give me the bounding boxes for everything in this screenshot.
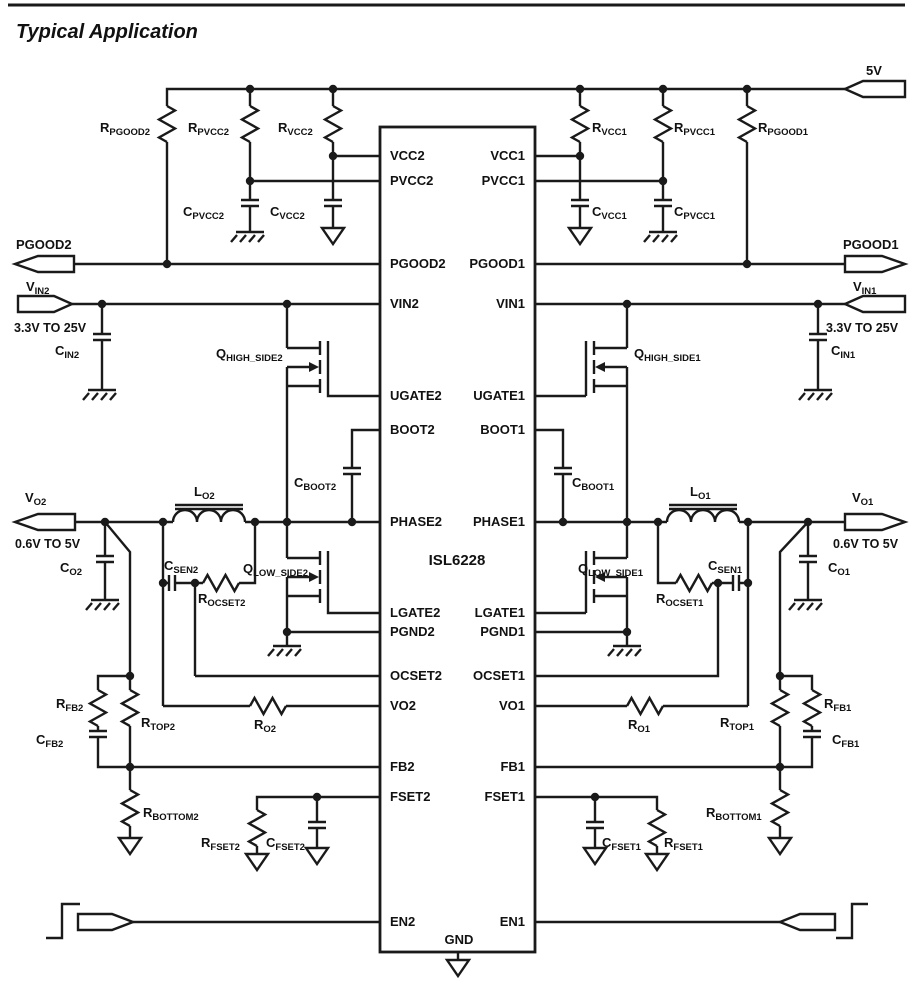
resistor-rpvcc1 (655, 106, 671, 142)
port-5v (845, 81, 905, 97)
label-cboot1: CBOOT1 (572, 475, 615, 493)
capacitor-cpvcc1 (654, 200, 672, 206)
label-cpvcc1: CPVCC1 (674, 204, 716, 222)
pin-vcc1: VCC1 (490, 148, 525, 163)
label-rbottom2: RBOTTOM2 (143, 805, 199, 823)
mosfet-q-high-side2 (287, 341, 320, 393)
resistor-rpgood1 (739, 106, 755, 142)
port-pgood2 (15, 256, 74, 272)
ground-triangle-icon (447, 960, 469, 976)
ground-triangle-icon (119, 838, 141, 854)
capacitor-cfset1 (586, 822, 604, 828)
resistor-rtop1 (772, 690, 788, 726)
port-vin1 (845, 296, 905, 312)
resistor-rbottom1 (772, 790, 788, 826)
pin-fb2: FB2 (390, 759, 415, 774)
port-en1 (780, 914, 835, 930)
label-cfset1: CFSET1 (602, 835, 642, 853)
label-rocset1: ROCSET1 (656, 591, 704, 609)
label-rtop2: RTOP2 (141, 715, 175, 733)
label-co2: CO2 (60, 560, 82, 578)
label-rpvcc1: RPVCC1 (674, 120, 716, 138)
ground-triangle-icon (569, 228, 591, 244)
label-qhighside2: QHIGH_SIDE2 (216, 346, 283, 364)
label-vin2-range: 3.3V TO 25V (14, 321, 87, 335)
label-ro1: RO1 (628, 717, 651, 735)
ic-part-number: ISL6228 (429, 552, 486, 569)
port-en2 (78, 914, 133, 930)
label-rvcc2: RVCC2 (278, 120, 313, 138)
label-cin1: CIN1 (831, 343, 856, 361)
ground-earth-icon (231, 232, 264, 242)
capacitor-cfb2 (89, 731, 107, 737)
label-vo2-range: 0.6V TO 5V (15, 537, 81, 551)
pin-vin1: VIN1 (496, 296, 525, 311)
pin-ocset2: OCSET2 (390, 668, 442, 683)
resistor-rvcc1 (572, 106, 588, 142)
ic-body (380, 127, 535, 952)
label-rfset2: RFSET2 (201, 835, 240, 853)
port-vo2 (15, 514, 75, 530)
ground-earth-icon (83, 390, 116, 400)
ground-earth-icon (608, 646, 641, 656)
label-cpvcc2: CPVCC2 (183, 204, 224, 222)
label-rtop1: RTOP1 (720, 715, 755, 733)
ground-triangle-icon (769, 838, 791, 854)
resistor-rocset2 (203, 575, 239, 591)
resistor-rfb2 (90, 690, 106, 726)
ground-triangle-icon (246, 854, 268, 870)
label-rpgood2: RPGOOD2 (100, 120, 150, 138)
enable-step-icon-en2 (46, 904, 80, 938)
label-pgood1: PGOOD1 (843, 237, 899, 252)
ground-earth-icon (799, 390, 832, 400)
pin-fset2: FSET2 (390, 789, 430, 804)
label-rfb2: RFB2 (56, 696, 83, 714)
capacitor-cvcc2 (324, 200, 342, 206)
typical-application-schematic: Typical Application (0, 0, 913, 1000)
label-rfset1: RFSET1 (664, 835, 704, 853)
label-rpgood1: RPGOOD1 (758, 120, 809, 138)
label-vin1-range: 3.3V TO 25V (826, 321, 899, 335)
capacitor-cboot2 (343, 468, 361, 474)
capacitor-cin2 (93, 334, 111, 340)
resistor-rpgood2 (159, 106, 175, 142)
pin-phase1: PHASE1 (473, 514, 525, 529)
resistor-rfset2 (249, 810, 265, 846)
label-rpvcc2: RPVCC2 (188, 120, 229, 138)
ground-earth-icon (644, 232, 677, 242)
resistor-rbottom2 (122, 790, 138, 826)
resistor-ro1 (627, 698, 663, 714)
label-csen2: CSEN2 (164, 558, 198, 576)
capacitor-co1 (799, 556, 817, 562)
port-vo1 (845, 514, 905, 530)
label-cin2: CIN2 (55, 343, 79, 361)
ground-earth-icon (789, 600, 822, 610)
label-csen1: CSEN1 (708, 558, 743, 576)
pin-vo1: VO1 (499, 698, 525, 713)
label-lo1: LO1 (690, 484, 711, 502)
pin-en1: EN1 (500, 914, 525, 929)
pin-ocset1: OCSET1 (473, 668, 525, 683)
resistor-rpvcc2 (242, 106, 258, 142)
resistor-rfb1 (804, 690, 820, 726)
label-vin1: VIN1 (853, 279, 877, 297)
pin-lgate1: LGATE1 (475, 605, 525, 620)
pin-vcc2: VCC2 (390, 148, 425, 163)
ground-earth-icon (86, 600, 119, 610)
ground-triangle-icon (646, 854, 668, 870)
capacitor-cin1 (809, 334, 827, 340)
capacitor-csen2 (169, 575, 175, 591)
pin-pvcc2: PVCC2 (390, 173, 433, 188)
resistor-rvcc2 (325, 106, 341, 142)
label-co1: CO1 (828, 560, 851, 578)
pin-boot1: BOOT1 (480, 422, 525, 437)
capacitor-co2 (96, 556, 114, 562)
pin-phase2: PHASE2 (390, 514, 442, 529)
pin-boot2: BOOT2 (390, 422, 435, 437)
label-cfb2: CFB2 (36, 732, 63, 750)
label-rbottom1: RBOTTOM1 (706, 805, 762, 823)
port-pgood1 (845, 256, 905, 272)
datasheet-page: Typical Application (0, 0, 913, 1000)
pin-en2: EN2 (390, 914, 415, 929)
label-ro2: RO2 (254, 717, 276, 735)
capacitor-cpvcc2 (241, 200, 259, 206)
label-cvcc1: CVCC1 (592, 204, 627, 222)
label-pgood2: PGOOD2 (16, 237, 72, 252)
label-qhighside1: QHIGH_SIDE1 (634, 346, 701, 364)
ground-earth-icon (268, 646, 301, 656)
pin-pgood2: PGOOD2 (390, 256, 446, 271)
resistor-rocset1 (676, 575, 712, 591)
capacitor-cfb1 (803, 731, 821, 737)
pin-fset1: FSET1 (485, 789, 525, 804)
label-vin2: VIN2 (26, 279, 49, 297)
label-rvcc1: RVCC1 (592, 120, 627, 138)
label-cfset2: CFSET2 (266, 835, 305, 853)
pin-pgood1: PGOOD1 (469, 256, 525, 271)
label-vo2: VO2 (25, 490, 46, 508)
label-5v: 5V (866, 63, 882, 78)
label-rocset2: ROCSET2 (198, 591, 245, 609)
ground-triangle-icon (584, 848, 606, 864)
mosfet-q-high-side1 (594, 341, 627, 393)
label-qlowside1: QLOW_SIDE1 (578, 561, 644, 579)
ground-triangle-icon (306, 848, 328, 864)
capacitor-csen1 (733, 575, 739, 591)
pin-vin2: VIN2 (390, 296, 419, 311)
pin-pvcc1: PVCC1 (482, 173, 525, 188)
port-vin2 (18, 296, 72, 312)
page-title: Typical Application (16, 21, 198, 43)
capacitor-cvcc1 (571, 200, 589, 206)
resistor-ro2 (250, 698, 286, 714)
label-cboot2: CBOOT2 (294, 475, 336, 493)
label-rfb1: RFB1 (824, 696, 852, 714)
label-qlowside2: QLOW_SIDE2 (243, 561, 308, 579)
label-vo1-range: 0.6V TO 5V (833, 537, 899, 551)
ground-triangle-icon (322, 228, 344, 244)
inductor-lo1 (667, 505, 739, 522)
enable-step-icon-en1 (836, 904, 868, 938)
pin-ugate1: UGATE1 (473, 388, 525, 403)
pin-gnd: GND (445, 932, 474, 947)
resistor-rfset1 (649, 810, 665, 846)
inductor-lo2 (173, 505, 245, 522)
pin-ugate2: UGATE2 (390, 388, 442, 403)
label-cfb1: CFB1 (832, 732, 860, 750)
pin-lgate2: LGATE2 (390, 605, 440, 620)
label-lo2: LO2 (194, 484, 215, 502)
pin-vo2: VO2 (390, 698, 416, 713)
pin-fb1: FB1 (500, 759, 525, 774)
label-cvcc2: CVCC2 (270, 204, 305, 222)
capacitor-cboot1 (554, 468, 572, 474)
label-vo1: VO1 (852, 490, 874, 508)
resistor-rtop2 (122, 690, 138, 726)
pin-pgnd1: PGND1 (480, 624, 525, 639)
pin-pgnd2: PGND2 (390, 624, 435, 639)
capacitor-cfset2 (308, 822, 326, 828)
